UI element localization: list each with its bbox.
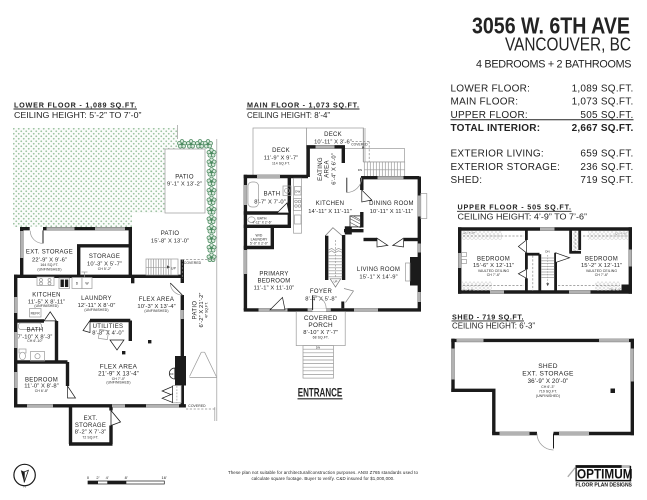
svg-text:2,667 SQ.FT.: 2,667 SQ.FT. bbox=[572, 123, 634, 134]
svg-text:BEDROOM: BEDROOM bbox=[257, 279, 290, 285]
svg-text:(UNFINISHED): (UNFINISHED) bbox=[37, 267, 61, 271]
svg-text:SHED:: SHED: bbox=[451, 175, 483, 186]
svg-text:15’-8” X 13’-0”: 15’-8” X 13’-0” bbox=[151, 239, 189, 245]
svg-text:LAUNDRY: LAUNDRY bbox=[81, 296, 112, 302]
svg-text:2’: 2’ bbox=[96, 475, 99, 480]
svg-text:BATH: BATH bbox=[264, 192, 281, 198]
svg-text:CEILING HEIGHT: 6’-3”: CEILING HEIGHT: 6’-3” bbox=[452, 321, 535, 330]
svg-text:CH 6’-3”: CH 6’-3” bbox=[541, 385, 554, 389]
svg-text:EXT.: EXT. bbox=[84, 416, 98, 422]
svg-text:11’-1” X 11’-10”: 11’-1” X 11’-10” bbox=[254, 285, 295, 291]
svg-text:68 SQ.FT.: 68 SQ.FT. bbox=[313, 336, 329, 340]
svg-text:BEDROOM: BEDROOM bbox=[477, 257, 510, 263]
svg-text:PATIO: PATIO bbox=[161, 231, 180, 237]
svg-text:8’: 8’ bbox=[125, 475, 128, 480]
svg-text:72 SQ.FT.: 72 SQ.FT. bbox=[82, 435, 98, 439]
svg-text:(UNFINISHED): (UNFINISHED) bbox=[106, 381, 130, 385]
svg-text:FLOOR PLAN DESIGNS: FLOOR PLAN DESIGNS bbox=[576, 482, 633, 488]
svg-text:STORAGE: STORAGE bbox=[89, 254, 120, 260]
svg-text:(UNFINISHED): (UNFINISHED) bbox=[144, 309, 168, 313]
svg-text:EATING: EATING bbox=[318, 157, 324, 181]
svg-text:EXTERIOR LIVING:: EXTERIOR LIVING: bbox=[451, 149, 544, 160]
svg-text:10’-11” X 11’-11”: 10’-11” X 11’-11” bbox=[370, 209, 414, 215]
svg-text:calculate square footage. Buye: calculate square footage. Buyer to verif… bbox=[251, 476, 394, 481]
svg-text:BATH: BATH bbox=[27, 328, 44, 334]
svg-text:PRIMARY: PRIMARY bbox=[259, 271, 288, 277]
svg-text:114 SQ.FT.: 114 SQ.FT. bbox=[272, 162, 290, 166]
svg-text:CEILING HEIGHT: 4’-9” TO 7’-6”: CEILING HEIGHT: 4’-9” TO 7’-6” bbox=[458, 212, 588, 221]
svg-text:10’-11” X 3’-6”: 10’-11” X 3’-6” bbox=[314, 140, 352, 146]
svg-text:COVERED: COVERED bbox=[188, 404, 206, 408]
svg-text:(UNFINISHED): (UNFINISHED) bbox=[536, 394, 560, 398]
svg-text:5’-0” X 2’-0”: 5’-0” X 2’-0” bbox=[250, 242, 268, 246]
svg-text:COVERED: COVERED bbox=[304, 315, 338, 322]
svg-text:PATIO: PATIO bbox=[193, 301, 199, 320]
svg-text:CH 6’-8”: CH 6’-8” bbox=[35, 389, 48, 393]
svg-text:KITCHEN: KITCHEN bbox=[316, 201, 344, 207]
svg-text:6’-4” X 6’-0”: 6’-4” X 6’-0” bbox=[332, 153, 338, 185]
svg-text:UP: UP bbox=[334, 279, 338, 283]
svg-text:UP: UP bbox=[171, 267, 177, 271]
svg-text:DN: DN bbox=[316, 345, 321, 349]
svg-text:MAIN FLOOR:: MAIN FLOOR: bbox=[451, 96, 519, 107]
svg-text:N: N bbox=[23, 485, 26, 489]
svg-text:PORCH: PORCH bbox=[308, 322, 333, 329]
svg-text:VANCOUVER, BC: VANCOUVER, BC bbox=[505, 34, 631, 54]
svg-text:DW: DW bbox=[295, 190, 300, 194]
svg-text:1,089 SQ.FT.: 1,089 SQ.FT. bbox=[572, 83, 634, 94]
svg-text:LIVING ROOM: LIVING ROOM bbox=[357, 267, 400, 273]
svg-text:UTILITIES: UTILITIES bbox=[93, 324, 124, 330]
svg-text:9’-1” X 13’-2”: 9’-1” X 13’-2” bbox=[167, 182, 202, 188]
svg-text:EXTERIOR STORAGE:: EXTERIOR STORAGE: bbox=[451, 162, 561, 173]
svg-text:TOTAL INTERIOR:: TOTAL INTERIOR: bbox=[451, 123, 541, 134]
svg-text:719 SQ.FT.: 719 SQ.FT. bbox=[539, 390, 557, 394]
svg-text:LOWER FLOOR - 1,089 SQ.FT.: LOWER FLOOR - 1,089 SQ.FT. bbox=[14, 101, 136, 110]
svg-text:0: 0 bbox=[87, 475, 90, 480]
svg-text:4’: 4’ bbox=[106, 475, 109, 480]
svg-text:CH 7’-6”: CH 7’-6” bbox=[487, 273, 500, 277]
svg-text:8’-7” X 7’-0”: 8’-7” X 7’-0” bbox=[254, 200, 286, 206]
svg-text:8’-4” X 5’-8”: 8’-4” X 5’-8” bbox=[305, 297, 337, 303]
svg-text:REFR: REFR bbox=[31, 312, 41, 316]
svg-text:CH 6’-10”: CH 6’-10” bbox=[27, 339, 42, 343]
svg-text:36’-9” X 20’-0”: 36’-9” X 20’-0” bbox=[528, 378, 569, 385]
svg-text:FLEX AREA: FLEX AREA bbox=[100, 364, 138, 371]
svg-text:OPTIMUM: OPTIMUM bbox=[577, 466, 633, 482]
svg-text:FOYER: FOYER bbox=[310, 289, 333, 295]
svg-text:659 SQ.FT.: 659 SQ.FT. bbox=[580, 149, 633, 160]
svg-text:719 SQ.FT.: 719 SQ.FT. bbox=[580, 175, 633, 186]
svg-text:1,073 SQ.FT.: 1,073 SQ.FT. bbox=[572, 96, 634, 107]
svg-text:DN: DN bbox=[358, 168, 363, 172]
svg-text:D: D bbox=[76, 282, 79, 286]
svg-text:WF: WF bbox=[169, 372, 174, 376]
svg-text:SHED: SHED bbox=[538, 363, 558, 370]
svg-text:CEILING HEIGHT: 5’-2” TO 7’-0”: CEILING HEIGHT: 5’-2” TO 7’-0” bbox=[14, 111, 142, 120]
svg-text:MAIN FLOOR - 1,073 SQ.FT.: MAIN FLOOR - 1,073 SQ.FT. bbox=[247, 101, 359, 110]
svg-text:PATIO: PATIO bbox=[175, 175, 194, 181]
svg-text:EXT. STORAGE: EXT. STORAGE bbox=[26, 249, 73, 255]
svg-text:LOWER FLOOR:: LOWER FLOOR: bbox=[451, 83, 531, 94]
svg-text:ENTRANCE: ENTRANCE bbox=[298, 385, 343, 399]
svg-text:FLEX AREA: FLEX AREA bbox=[139, 297, 174, 303]
svg-text:These plan not suitable for ar: These plan not suitable for architectura… bbox=[228, 470, 419, 475]
svg-text:COVERED: COVERED bbox=[351, 142, 368, 146]
svg-text:15’-1” X 14’-9”: 15’-1” X 14’-9” bbox=[359, 275, 397, 281]
svg-text:CEILING HEIGHT: 8’-4”: CEILING HEIGHT: 8’-4” bbox=[247, 111, 330, 120]
svg-text:BEDROOM: BEDROOM bbox=[25, 377, 58, 383]
svg-text:(UNFINISHED): (UNFINISHED) bbox=[84, 308, 108, 312]
svg-text:(UNFINISHED): (UNFINISHED) bbox=[34, 304, 58, 308]
svg-text:16’: 16’ bbox=[161, 475, 167, 480]
svg-text:AREA: AREA bbox=[325, 160, 331, 178]
svg-text:DECK: DECK bbox=[324, 132, 342, 138]
svg-text:236 SQ.FT.: 236 SQ.FT. bbox=[580, 162, 633, 173]
svg-text:47 SQ.FT.: 47 SQ.FT. bbox=[205, 302, 209, 318]
svg-text:4 BEDROOMS + 2 BATHROOMS: 4 BEDROOMS + 2 BATHROOMS bbox=[476, 59, 632, 71]
svg-text:DN: DN bbox=[545, 249, 550, 253]
svg-text:SHED - 719 SQ.FT.: SHED - 719 SQ.FT. bbox=[452, 312, 524, 321]
svg-text:14’-11” X 11’-11”: 14’-11” X 11’-11” bbox=[308, 209, 352, 215]
svg-text:STORAGE: STORAGE bbox=[75, 423, 106, 429]
svg-text:CH 7’-6”: CH 7’-6” bbox=[595, 273, 608, 277]
svg-text:CH 5’-2”: CH 5’-2” bbox=[98, 267, 111, 271]
svg-text:COVERED: COVERED bbox=[184, 261, 202, 265]
svg-text:EXT. STORAGE: EXT. STORAGE bbox=[522, 371, 574, 378]
svg-text:DECK: DECK bbox=[272, 148, 290, 154]
svg-text:UPPER FLOOR - 505 SQ.FT.: UPPER FLOOR - 505 SQ.FT. bbox=[458, 203, 572, 212]
svg-text:BEDROOM: BEDROOM bbox=[585, 257, 618, 263]
svg-text:DINING ROOM: DINING ROOM bbox=[369, 201, 414, 207]
svg-text:KITCHEN: KITCHEN bbox=[32, 292, 60, 298]
